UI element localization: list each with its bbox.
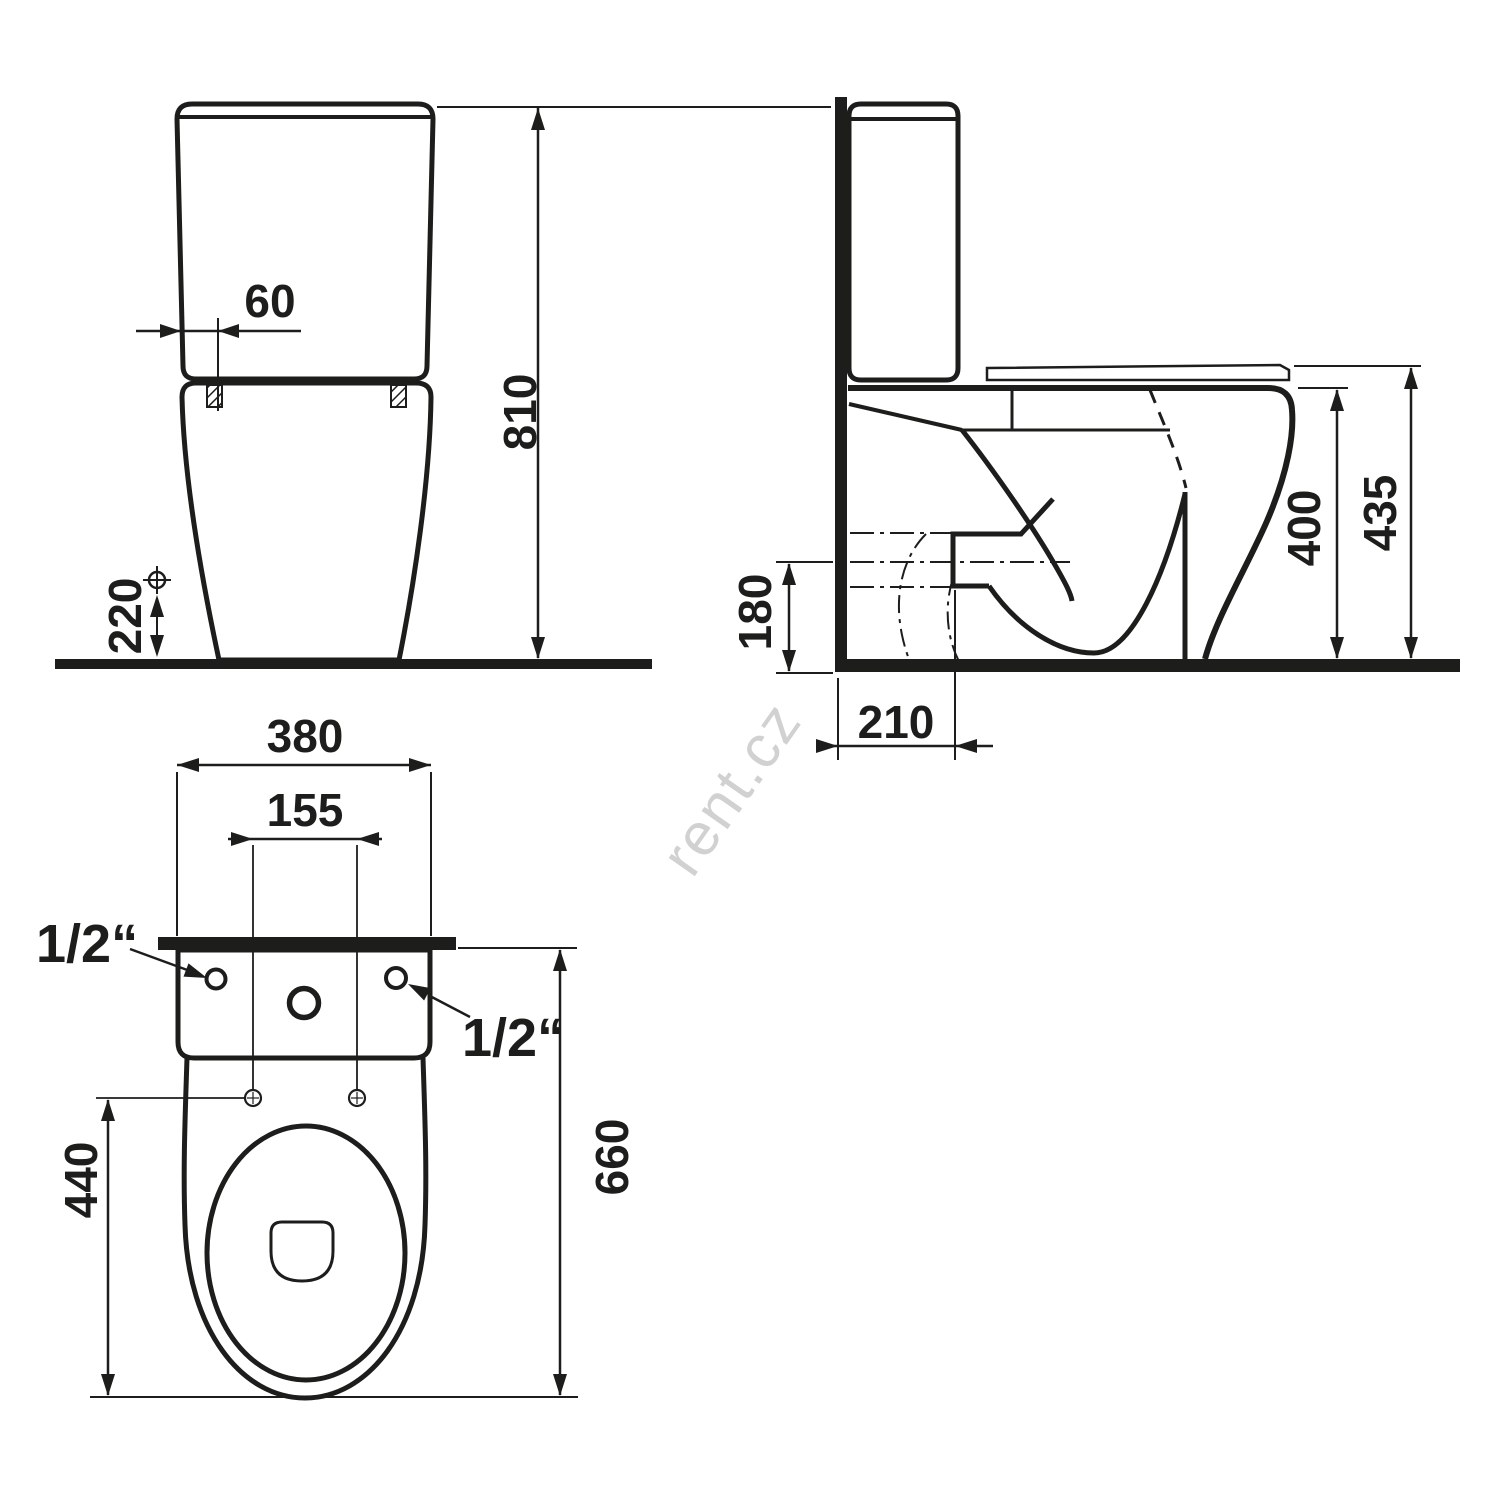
side-interior-diagonal	[849, 404, 962, 430]
front-bowl-outline	[182, 383, 431, 660]
arrow-icon	[357, 832, 379, 846]
arrow-icon	[1404, 367, 1418, 389]
side-seat-lid	[987, 365, 1289, 380]
arrow-icon	[150, 635, 164, 657]
dim-label-400: 400	[1278, 490, 1330, 567]
plan-view: 380 155 1/2“	[36, 710, 638, 1398]
arrow-icon	[955, 739, 977, 753]
arrow-icon	[231, 832, 253, 846]
arrow-icon	[150, 595, 164, 617]
arrow-icon	[553, 949, 567, 971]
arrow-icon	[101, 1374, 115, 1396]
dim-label-660: 660	[586, 1119, 638, 1196]
front-bolt-left	[207, 385, 222, 407]
side-hidden-trap-dashed	[1150, 390, 1186, 488]
arrow-icon	[782, 563, 796, 585]
dim-front-inlet-height: 220	[99, 566, 171, 657]
arrow-icon	[409, 758, 431, 772]
side-inner-bowl-curve	[962, 430, 1072, 601]
dim-label-210: 210	[858, 696, 935, 748]
arrow-icon	[1404, 637, 1418, 659]
inlet-right-label: 1/2“	[462, 1008, 564, 1068]
plan-wall-line	[158, 937, 456, 950]
side-wall-line	[835, 97, 847, 672]
dim-label-155: 155	[267, 784, 344, 836]
side-floor-line	[835, 659, 1460, 672]
arrow-icon	[531, 637, 545, 659]
inlet-left-label: 1/2“	[36, 914, 138, 974]
arrow-icon	[553, 1374, 567, 1396]
plan-seat-bolt-right	[349, 1090, 365, 1106]
front-cistern-outline	[177, 104, 433, 379]
plan-seat-bolt-left	[245, 1090, 261, 1106]
plan-flush-inlet	[271, 1222, 333, 1281]
technical-drawing-sheet: rent.cz 60 810	[0, 0, 1500, 1500]
plan-cistern-outline	[178, 950, 430, 1058]
dim-label-435: 435	[1354, 475, 1406, 552]
dim-label-810: 810	[494, 374, 546, 451]
arrow-icon	[177, 758, 199, 772]
front-floor-line	[55, 659, 652, 669]
dim-label-220: 220	[99, 578, 151, 655]
front-view: 60 810 220	[55, 104, 831, 669]
arrow-icon	[1330, 389, 1344, 411]
dim-label-440: 440	[55, 1142, 107, 1219]
dim-label-60: 60	[244, 275, 295, 327]
side-view: 180 210 400 435	[729, 97, 1460, 760]
front-bolt-right	[391, 385, 406, 407]
arrow-icon	[531, 108, 545, 130]
dim-side-outlet-height: 180	[729, 562, 833, 673]
side-outlet-step	[953, 499, 1053, 586]
dim-label-380: 380	[267, 710, 344, 762]
watermark: rent.cz	[648, 690, 814, 887]
arrow-icon	[816, 739, 838, 753]
side-cistern-outline	[849, 104, 958, 380]
arrow-icon	[782, 650, 796, 672]
dim-label-180: 180	[729, 574, 781, 651]
side-trap-bottom-curve	[989, 494, 1185, 653]
arrow-icon	[101, 1099, 115, 1121]
side-centerlines	[850, 533, 1070, 667]
toilet-dimension-drawing: rent.cz 60 810	[0, 0, 1500, 1500]
arrow-icon	[160, 324, 181, 338]
dim-side-rim-height: 400	[1278, 388, 1348, 659]
arrow-icon	[1330, 637, 1344, 659]
